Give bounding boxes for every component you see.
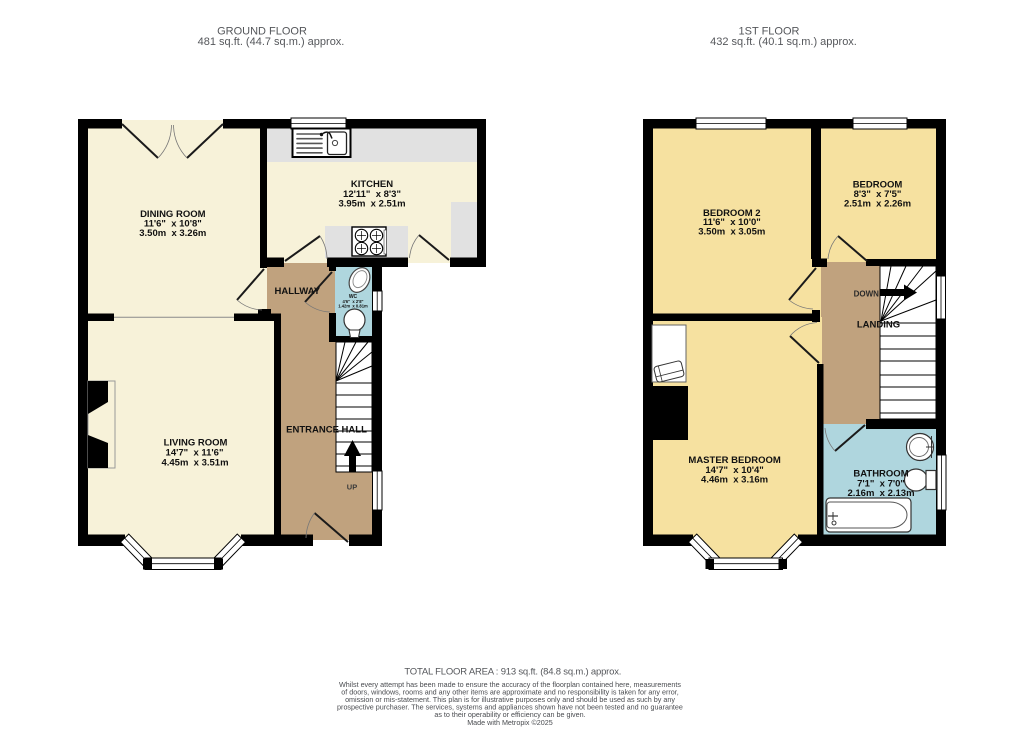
svg-text:DOWN: DOWN [854,289,880,298]
svg-text:432 sq.ft. (40.1 sq.m.) approx: 432 sq.ft. (40.1 sq.m.) approx. [710,36,857,48]
svg-text:ENTRANCE HALL: ENTRANCE HALL [286,425,367,436]
svg-text:LANDING: LANDING [857,319,900,330]
svg-text:2.51m x 2.26m: 2.51m x 2.26m [844,199,911,210]
svg-text:4.45m x 3.51m: 4.45m x 3.51m [161,458,228,469]
svg-text:3.50m x 3.05m: 3.50m x 3.05m [698,226,765,237]
svg-text:2.16m x 2.13m: 2.16m x 2.13m [847,488,914,499]
svg-text:Made with Metropix ©2025: Made with Metropix ©2025 [467,718,553,727]
svg-text:TOTAL FLOOR AREA : 913 sq.ft.: TOTAL FLOOR AREA : 913 sq.ft. (84.8 sq.m… [404,667,621,678]
svg-text:3.50m x 3.26m: 3.50m x 3.26m [139,228,206,239]
svg-text:3.95m x 2.51m: 3.95m x 2.51m [338,199,405,210]
svg-text:HALLWAY: HALLWAY [275,286,321,297]
svg-text:UP: UP [347,483,357,492]
svg-text:1.42m x 0.81m: 1.42m x 0.81m [338,303,368,308]
svg-text:4.46m x 3.16m: 4.46m x 3.16m [701,475,768,486]
svg-text:481 sq.ft. (44.7 sq.m.) approx: 481 sq.ft. (44.7 sq.m.) approx. [198,36,345,48]
